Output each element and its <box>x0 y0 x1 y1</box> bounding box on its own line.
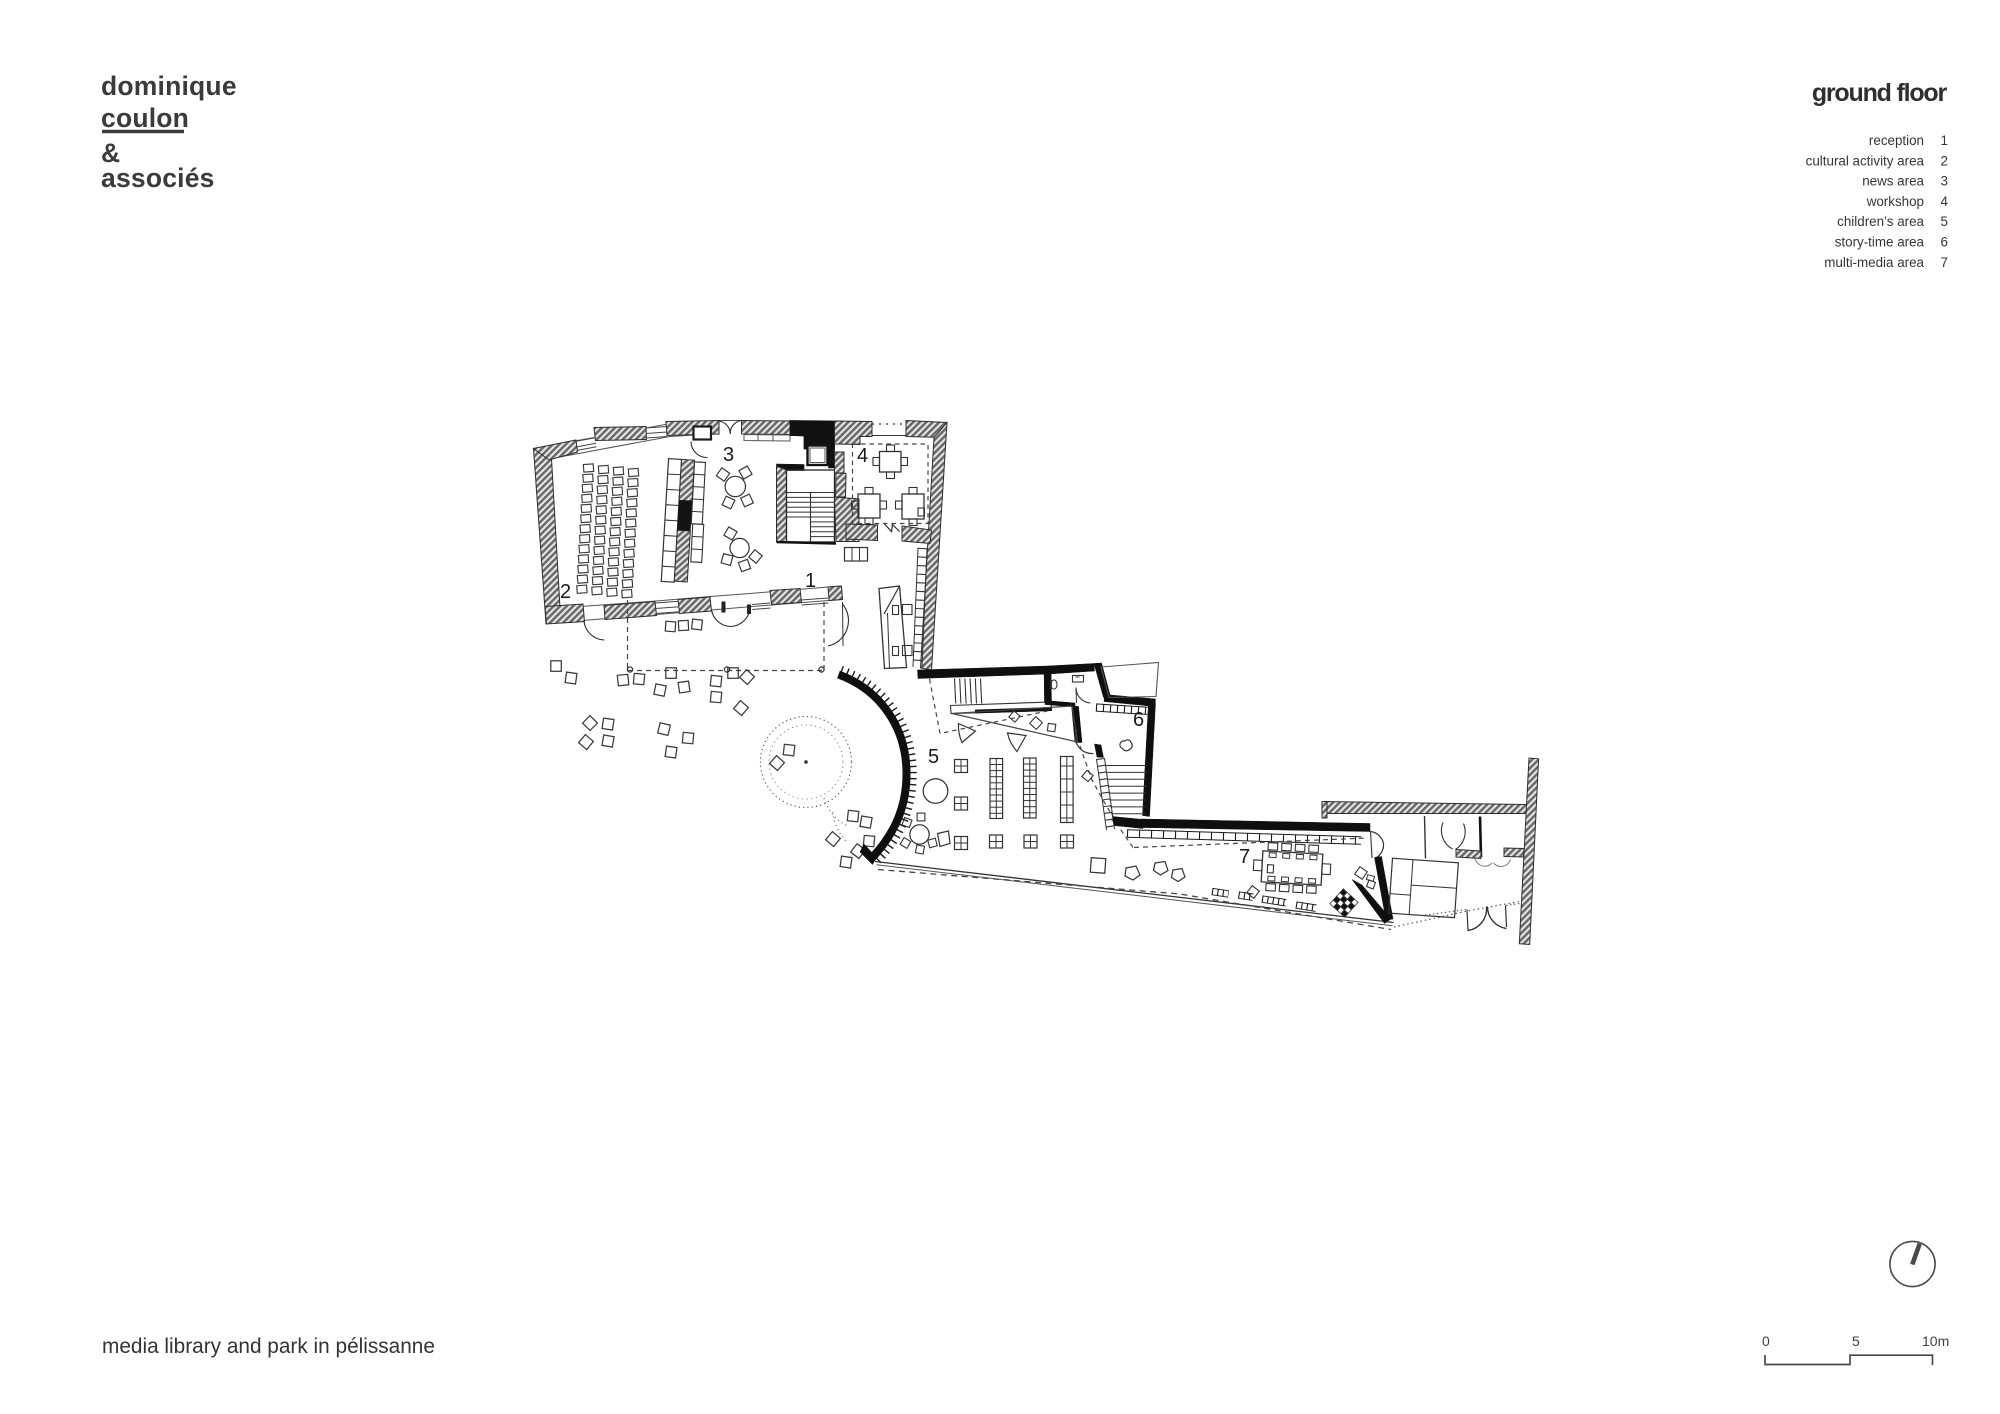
svg-text:2: 2 <box>1941 153 1948 168</box>
svg-text:story-time area: story-time area <box>1835 235 1925 250</box>
svg-text:1: 1 <box>1941 133 1948 148</box>
svg-text:3: 3 <box>1941 174 1948 189</box>
svg-text:5: 5 <box>1941 214 1948 229</box>
svg-text:0: 0 <box>1762 1333 1770 1349</box>
svg-text:5: 5 <box>928 746 939 768</box>
svg-text:news area: news area <box>1862 174 1924 189</box>
svg-text:associés: associés <box>101 163 215 193</box>
svg-text:7: 7 <box>1239 846 1250 868</box>
svg-text:cultural activity area: cultural activity area <box>1806 153 1925 168</box>
svg-text:4: 4 <box>857 445 868 467</box>
svg-text:coulon: coulon <box>101 103 189 133</box>
svg-text:workshop: workshop <box>1866 194 1924 209</box>
svg-text:1: 1 <box>805 570 816 592</box>
svg-text:5: 5 <box>1852 1333 1860 1349</box>
svg-text:media library and park in péli: media library and park in pélissanne <box>102 1335 435 1358</box>
svg-text:children’s area: children’s area <box>1837 214 1924 229</box>
svg-text:6: 6 <box>1941 235 1948 250</box>
svg-text:3: 3 <box>723 444 734 466</box>
svg-text:multi-media area: multi-media area <box>1824 255 1924 270</box>
svg-text:reception: reception <box>1869 133 1924 148</box>
svg-text:6: 6 <box>1133 709 1144 731</box>
svg-text:dominique: dominique <box>101 71 237 101</box>
svg-text:7: 7 <box>1941 255 1948 270</box>
svg-text:4: 4 <box>1941 194 1949 209</box>
svg-text:10m: 10m <box>1922 1333 1949 1349</box>
svg-text:ground floor: ground floor <box>1812 79 1948 107</box>
svg-text:2: 2 <box>560 581 571 603</box>
